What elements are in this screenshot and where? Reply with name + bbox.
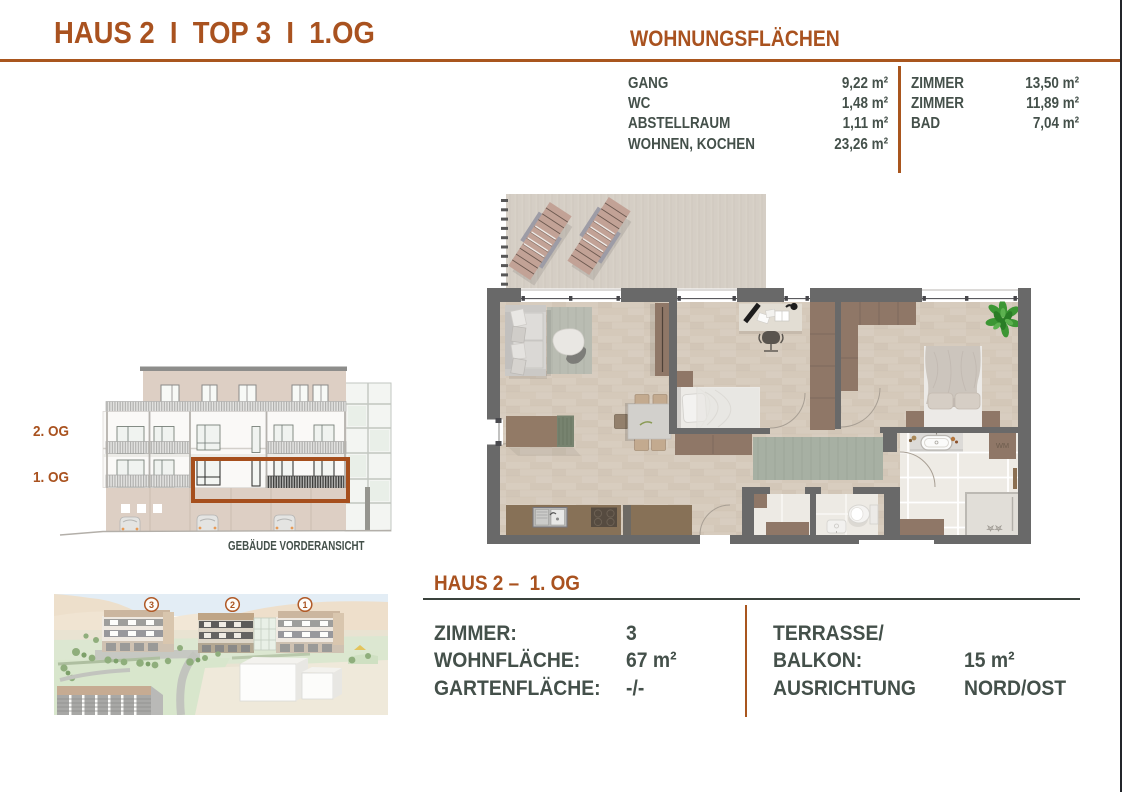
svg-text:3: 3	[149, 600, 154, 610]
svg-text:WM: WM	[996, 441, 1009, 450]
svg-text:2: 2	[230, 600, 235, 610]
svg-text:1: 1	[302, 600, 307, 610]
